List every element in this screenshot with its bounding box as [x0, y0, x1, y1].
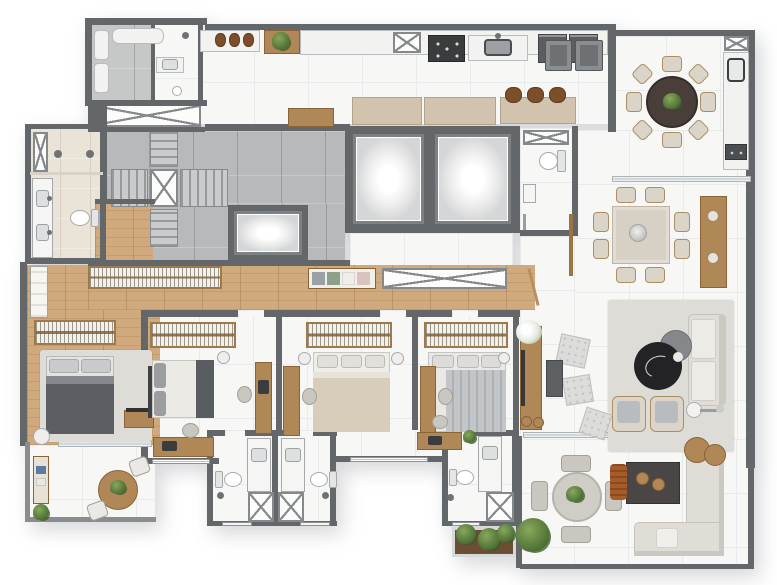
console-tray-2 — [533, 417, 544, 428]
shower-divider — [30, 172, 103, 175]
wall-br3-br4 — [412, 317, 418, 430]
br3-wardrobe — [306, 322, 392, 348]
slat-partition — [569, 214, 573, 276]
sideboard-decor-1 — [707, 210, 719, 222]
master-faucet-1 — [47, 196, 52, 201]
armchair-seat — [655, 401, 678, 423]
shelf-plant — [272, 32, 290, 50]
br4-plant — [463, 430, 476, 443]
lavabo-toilet-bowl — [539, 152, 558, 170]
terrace-side-table-2 — [704, 444, 726, 466]
wall-left-suite — [20, 262, 27, 446]
bath3-window — [300, 522, 330, 526]
bistro-plant — [110, 480, 126, 494]
console-tray-1 — [521, 416, 532, 427]
master-faucet-2 — [47, 230, 52, 235]
folded-clothes-1 — [312, 272, 325, 285]
stair-flight-top — [150, 131, 178, 167]
br2-laptop-2 — [258, 380, 269, 394]
bath3-toilet-bowl — [310, 472, 328, 487]
br4-chair-2 — [432, 415, 448, 429]
bath-shaft — [33, 132, 48, 172]
bar-stool-1 — [505, 87, 522, 103]
terrace-sofa-back-1 — [719, 450, 724, 556]
laundry-basket-2 — [229, 33, 240, 47]
br2-window — [152, 459, 210, 464]
bath2-shower — [248, 492, 274, 522]
sofa-cushion-1 — [691, 319, 716, 359]
planter-plant-3 — [497, 524, 515, 542]
wall-left-service — [85, 18, 92, 106]
water-heater-2 — [94, 63, 109, 93]
railing-left-balcony — [25, 442, 30, 522]
folded-clothes-2 — [327, 272, 340, 285]
bath3-shower-head — [322, 492, 329, 499]
apartment-floor-plan — [0, 0, 777, 585]
balcony-chair-s — [662, 132, 682, 148]
terrace-chair-s — [561, 526, 591, 543]
bar-stool-3 — [549, 87, 566, 103]
sideboard-decor-2 — [707, 252, 719, 264]
bar-stool-2 — [527, 87, 544, 103]
glass-balcony-dining — [612, 176, 751, 182]
terrace-table-plant — [566, 486, 584, 502]
terrace-sofa-cushion — [656, 528, 678, 548]
lavabo-duct — [523, 130, 569, 145]
door-gap-br3 — [380, 310, 406, 317]
kitchen-cabinet-wood — [288, 108, 334, 127]
bath2-shower-head — [217, 492, 224, 499]
laundry-basket-1 — [215, 33, 226, 47]
living-armchair-1 — [612, 396, 646, 432]
wall-bottom-terrace — [520, 564, 754, 569]
bath3-basin — [285, 448, 301, 462]
door-gap-bath2 — [225, 430, 245, 436]
kitchen-cabinet-2 — [424, 97, 496, 125]
laundry-basket-3 — [243, 33, 254, 47]
kitchen-faucet — [495, 33, 501, 39]
bath2-vanity — [247, 438, 271, 492]
bath3-shower — [278, 492, 304, 522]
console-tv — [521, 350, 525, 406]
folded-clothes-4 — [357, 272, 370, 285]
fire-table-tray-2 — [652, 478, 665, 491]
terrace-chair-w — [531, 481, 548, 511]
br2-bed-runner — [196, 360, 214, 418]
balcony-chair-n — [662, 56, 682, 72]
balcony-towels-white — [36, 478, 46, 486]
kitchen-cabinet-1 — [352, 97, 422, 125]
shower-head-1 — [54, 150, 62, 158]
entry-cabinet-1 — [545, 40, 572, 71]
master-wardrobe — [34, 320, 116, 345]
bath4-vanity — [478, 436, 502, 492]
service-sink — [162, 59, 178, 70]
dining-chair-6 — [593, 239, 609, 259]
dining-chair-1 — [616, 187, 636, 203]
dining-chair-2 — [645, 187, 665, 203]
dining-centerpiece — [629, 224, 647, 242]
living-sofa-back — [719, 314, 726, 406]
br3-window — [350, 457, 428, 462]
terrace-chair-n — [561, 455, 591, 472]
master-toilet-tank — [91, 209, 99, 227]
wall-masterbath-top — [28, 124, 103, 129]
br2-pillow-1 — [154, 363, 166, 388]
br3-desk-side — [283, 366, 300, 436]
coffee-table-black — [634, 342, 682, 390]
dining-chair-8 — [674, 239, 690, 259]
pouf-2 — [562, 374, 594, 406]
floor-lamp-head — [716, 405, 724, 413]
master-duvet — [46, 376, 114, 434]
planter-plant-1 — [456, 524, 476, 544]
terrace-sofa-back-2 — [634, 551, 724, 556]
shower-head-service — [182, 32, 189, 39]
wall-masterbath-right — [100, 124, 106, 260]
br3-pillow-2 — [341, 355, 362, 368]
balcony-chair-w — [626, 92, 642, 112]
br2-laptop-1 — [162, 441, 177, 451]
balcony-towels-blue — [36, 466, 46, 474]
door-gap-br2 — [238, 310, 264, 317]
dining-chair-5 — [593, 212, 609, 232]
shower-head-2 — [86, 150, 94, 158]
br2-chair-1 — [182, 423, 199, 438]
bath2-toilet-bowl — [224, 472, 242, 487]
hall-wardrobe — [88, 266, 222, 289]
br3-pillow-3 — [365, 355, 385, 368]
terrace-corner-plant — [516, 518, 550, 552]
armchair-seat — [617, 401, 640, 423]
balcony-chair-e — [700, 92, 716, 112]
balcony-sink — [727, 58, 745, 82]
master-pillow-1 — [49, 359, 79, 373]
sofa-cushion-2 — [691, 361, 716, 401]
service-machine — [112, 28, 164, 44]
br4-side-table — [498, 352, 510, 364]
wall-left-masterbath — [25, 124, 31, 264]
lavabo-sink — [523, 184, 536, 203]
cooktop — [428, 35, 465, 62]
kitchen-sink — [484, 39, 512, 56]
wall-br2-br3 — [276, 317, 282, 430]
floor-plan-canvas — [0, 0, 777, 585]
bath4-shower-head — [447, 494, 454, 501]
br2-desk-side — [255, 362, 272, 434]
wall-right-terrace — [748, 462, 754, 569]
br4-wardrobe — [424, 322, 508, 348]
console-flowers — [516, 320, 542, 344]
br3-side-table-2 — [391, 352, 404, 365]
bath2-basin — [251, 448, 267, 462]
grill — [725, 144, 747, 160]
bath2-window — [222, 522, 252, 526]
br2-chair-2 — [237, 386, 252, 403]
kitchen-duct — [393, 32, 421, 53]
br3-chair — [302, 388, 317, 405]
master-shelving — [30, 266, 48, 318]
bath4-toilet-bowl — [456, 470, 474, 485]
service-duct-shaft — [93, 104, 201, 127]
bath3-toilet-tank — [329, 471, 337, 488]
br3-side-table-1 — [298, 352, 311, 365]
br2-wardrobe — [150, 322, 236, 348]
bath3-vanity — [281, 438, 305, 492]
stair-flight-bottom — [150, 209, 178, 247]
wall-top-service — [85, 18, 207, 25]
fire-table-tray-1 — [636, 472, 649, 485]
lavabo-towel-bar — [523, 214, 526, 230]
br4-laptop — [428, 436, 442, 445]
master-pillow-2 — [81, 359, 111, 373]
wall-kitchen-right — [608, 24, 616, 132]
water-heater-1 — [94, 30, 109, 60]
dining-chair-3 — [616, 267, 636, 283]
elevator-1 — [353, 134, 424, 224]
entry-cabinet-2 — [575, 40, 603, 71]
folded-clothes-3 — [342, 272, 355, 285]
lavabo-toilet-tank — [557, 150, 566, 172]
living-side-table — [546, 360, 563, 397]
master-toilet-bowl — [70, 210, 90, 226]
br2-pillow-2 — [154, 391, 166, 416]
br4-duvet — [446, 370, 506, 432]
stair-flight-right — [180, 169, 228, 207]
dining-chair-7 — [674, 212, 690, 232]
balcony-pot-plant — [33, 504, 49, 520]
br3-duvet — [313, 372, 390, 432]
balcony-table-plant — [663, 93, 681, 109]
bath4-shower — [486, 492, 514, 522]
service-drain — [172, 86, 182, 96]
balcony-duct — [724, 36, 749, 51]
dining-chair-4 — [645, 267, 665, 283]
living-armchair-2 — [650, 396, 684, 432]
br2-lamp-table — [217, 351, 230, 364]
elevator-2 — [435, 134, 511, 224]
door-gap-br4 — [452, 310, 478, 317]
linen-closet — [382, 268, 507, 289]
master-lamp-table — [33, 428, 50, 445]
bath4-basin — [482, 446, 498, 460]
br3-pillow-1 — [317, 355, 338, 368]
br4-chair-1 — [438, 388, 453, 405]
service-elevator — [234, 211, 302, 255]
orange-pouf — [610, 464, 627, 500]
br4-pillow-2 — [457, 355, 479, 368]
bath2-toilet-tank — [215, 471, 223, 488]
coffee-table-plate — [673, 352, 683, 362]
